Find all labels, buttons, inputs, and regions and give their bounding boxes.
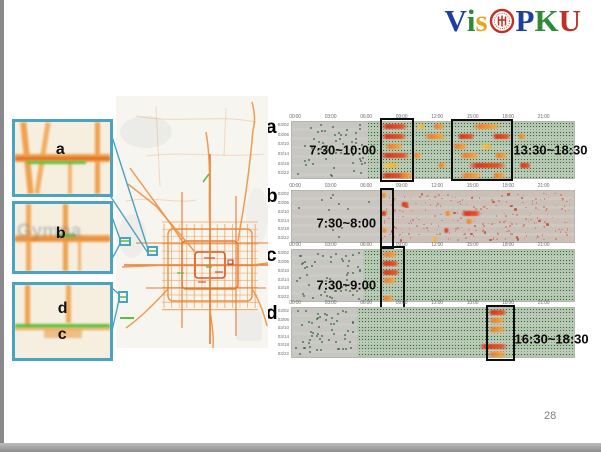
time-range-annotation: 13:30~18:30 xyxy=(513,143,587,158)
logo-letter: U xyxy=(559,4,581,38)
noise-dot xyxy=(512,214,514,216)
noise-dot xyxy=(495,205,497,207)
noise-dot xyxy=(328,209,330,211)
noise-dot xyxy=(475,230,477,232)
time-range-annotation: 7:30~8:00 xyxy=(316,216,376,231)
noise-dot xyxy=(317,131,319,133)
noise-dot xyxy=(408,223,410,225)
y-tick-label: 03/14 xyxy=(274,334,289,339)
inset-road xyxy=(27,161,86,164)
noise-dot xyxy=(565,232,567,234)
noise-dot xyxy=(352,254,354,256)
noise-dot xyxy=(304,347,306,349)
inset-label-b: b xyxy=(56,225,66,243)
congestion-hotspot xyxy=(519,163,531,168)
noise-dot xyxy=(440,214,442,216)
noise-dot xyxy=(332,194,334,196)
noise-dot xyxy=(434,215,436,217)
noise-dot xyxy=(333,323,335,325)
noise-dot xyxy=(460,217,462,219)
noise-dot xyxy=(436,196,438,198)
noise-dot xyxy=(460,203,462,205)
y-tick-label: 03/02 xyxy=(274,250,289,255)
noise-dot xyxy=(352,331,354,333)
noise-dot xyxy=(505,238,507,240)
noise-dot xyxy=(534,222,536,224)
noise-dot xyxy=(328,339,330,341)
noise-dot xyxy=(302,341,304,343)
noise-dot xyxy=(479,197,481,199)
noise-dot xyxy=(313,138,315,140)
heatmap-row-a: a00:0003:0006:0009:0012:0015:0018:0021:0… xyxy=(291,121,575,179)
noise-dot xyxy=(523,224,525,226)
logo-letter: s xyxy=(475,4,487,38)
noise-dot xyxy=(517,194,519,196)
noise-dot xyxy=(342,348,344,350)
noise-dot xyxy=(401,228,403,230)
noise-dot xyxy=(505,226,507,228)
noise-dot xyxy=(346,274,348,276)
x-tick-label: 06:00 xyxy=(360,183,372,189)
noise-dot xyxy=(350,347,352,349)
noise-dot xyxy=(426,196,428,198)
x-tick-label: 03:00 xyxy=(325,242,337,248)
noise-dot xyxy=(492,201,495,204)
noise-dot xyxy=(309,339,311,341)
x-tick-label: 21:00 xyxy=(538,114,550,120)
noise-dot xyxy=(537,217,539,219)
noise-dot xyxy=(331,297,333,299)
vispku-logo: VisPKU xyxy=(444,4,581,41)
noise-dot xyxy=(562,198,564,200)
noise-dot xyxy=(453,212,456,215)
map-inset-b: Gymnab xyxy=(12,201,113,274)
noise-dot xyxy=(532,203,534,205)
y-tick-label: 03/10 xyxy=(274,268,289,273)
noise-dot xyxy=(521,197,524,200)
noise-dot xyxy=(565,210,567,212)
noise-dot xyxy=(416,217,418,219)
noise-dot xyxy=(509,225,511,227)
noise-dot xyxy=(309,346,311,348)
noise-dot xyxy=(362,157,364,159)
noise-dot xyxy=(413,219,415,221)
noise-dot xyxy=(567,222,569,224)
noise-dot xyxy=(311,335,313,337)
y-tick-label: 03/10 xyxy=(274,325,289,330)
noise-dot xyxy=(335,253,337,255)
noise-dot xyxy=(335,341,337,343)
noise-dot xyxy=(342,260,344,262)
noise-dot xyxy=(528,221,530,223)
noise-dot xyxy=(368,201,370,203)
noise-dot xyxy=(564,205,566,207)
noise-dot xyxy=(438,225,440,227)
noise-dot xyxy=(342,310,344,312)
noise-dot xyxy=(408,206,410,208)
noise-dot xyxy=(325,319,327,321)
noise-dot xyxy=(510,205,513,208)
noise-dot xyxy=(538,209,540,211)
noise-dot xyxy=(408,233,410,235)
noise-dot xyxy=(499,221,501,223)
noise-dot xyxy=(304,261,306,263)
noise-dot xyxy=(560,194,562,196)
noise-dot xyxy=(299,353,301,355)
noise-dot xyxy=(352,162,354,164)
heatmap-row-c: c00:0003:0006:0009:0012:0015:0018:0021:0… xyxy=(291,249,575,302)
noise-dot xyxy=(330,197,332,199)
noise-dot xyxy=(496,215,498,217)
noise-dot xyxy=(326,295,328,297)
y-tick-label: 03/18 xyxy=(274,161,289,166)
x-tick-label: 09:00 xyxy=(396,183,408,189)
x-tick-label: 00:00 xyxy=(289,114,301,120)
noise-dot xyxy=(508,230,510,232)
noise-dot xyxy=(525,207,527,209)
noise-dot xyxy=(352,272,354,274)
x-tick-label: 06:00 xyxy=(360,300,372,306)
noise-dot xyxy=(346,129,348,131)
x-tick-label: 21:00 xyxy=(538,183,550,189)
heatmap-plot-d: 16:30~18:30 xyxy=(291,307,575,358)
noise-dot xyxy=(338,203,340,205)
noise-dot xyxy=(314,261,316,263)
noise-dot xyxy=(423,228,425,230)
noise-dot xyxy=(481,213,483,215)
noise-dot xyxy=(507,193,510,196)
noise-dot xyxy=(402,232,404,234)
noise-dot xyxy=(334,134,336,136)
noise-dot xyxy=(331,329,333,331)
highlight-rect xyxy=(380,118,413,182)
noise-dot xyxy=(306,266,308,268)
noise-dot xyxy=(431,223,433,225)
noise-dot xyxy=(530,213,532,215)
noise-dot xyxy=(321,335,323,337)
noise-dot xyxy=(440,205,442,207)
congestion-hotspot xyxy=(445,211,451,216)
noise-dot xyxy=(394,210,396,212)
noise-dot xyxy=(411,211,413,213)
noise-dot xyxy=(474,221,476,223)
noise-dot xyxy=(473,235,475,237)
noise-dot xyxy=(316,335,318,337)
noise-dot xyxy=(305,310,307,312)
window-left-edge xyxy=(0,0,4,452)
noise-dot xyxy=(358,252,360,254)
inset-label-a: a xyxy=(56,141,65,159)
noise-dot xyxy=(355,132,357,134)
noise-dot xyxy=(331,317,333,319)
y-tick-label: 03/02 xyxy=(274,122,289,127)
noise-dot xyxy=(441,220,443,222)
noise-dot xyxy=(506,201,508,203)
x-tick-label: 15:00 xyxy=(467,183,479,189)
noise-dot xyxy=(564,222,566,224)
noise-dot xyxy=(448,238,450,240)
noise-dot xyxy=(306,274,308,276)
noise-dot xyxy=(457,212,459,214)
dot-scatter xyxy=(292,250,574,301)
y-tick-label: 03/02 xyxy=(274,191,289,196)
noise-dot xyxy=(360,160,362,162)
noise-dot xyxy=(305,164,307,166)
x-tick-label: 15:00 xyxy=(467,300,479,306)
noise-dot xyxy=(352,294,354,296)
noise-dot xyxy=(402,211,404,213)
noise-dot xyxy=(322,255,324,257)
noise-dot xyxy=(464,233,466,235)
y-tick-label: 03/14 xyxy=(274,151,289,156)
noise-dot xyxy=(302,262,304,264)
noise-dot xyxy=(425,209,427,211)
noise-dot xyxy=(462,199,464,201)
noise-dot xyxy=(474,225,477,228)
noise-dot xyxy=(486,208,488,210)
logo-letter: K xyxy=(534,4,558,38)
noise-dot xyxy=(415,203,417,205)
noise-dot xyxy=(449,232,451,234)
noise-dot xyxy=(359,270,361,272)
window-bottom-bar xyxy=(0,443,601,452)
noise-dot xyxy=(447,194,449,196)
noise-dot xyxy=(529,215,531,217)
noise-dot xyxy=(319,316,321,318)
noise-dot xyxy=(297,310,299,312)
noise-dot xyxy=(413,210,415,212)
noise-dot xyxy=(491,223,493,225)
traffic-map-area: aGymnabdc xyxy=(8,92,270,358)
noise-dot xyxy=(364,162,366,164)
noise-dot xyxy=(325,158,327,160)
x-tick-label: 18:00 xyxy=(502,183,514,189)
highlight-rect xyxy=(451,119,514,181)
noise-dot xyxy=(465,237,467,239)
noise-dot xyxy=(516,223,518,225)
noise-dot xyxy=(555,238,557,240)
noise-dot xyxy=(555,230,557,232)
noise-dot xyxy=(421,195,423,197)
y-tick-label: 03/22 xyxy=(274,170,289,175)
noise-dot xyxy=(569,205,571,207)
noise-dot xyxy=(428,230,430,232)
x-tick-label: 03:00 xyxy=(325,183,337,189)
noise-dot xyxy=(498,200,500,202)
noise-dot xyxy=(526,235,528,237)
noise-dot xyxy=(546,194,548,196)
noise-dot xyxy=(429,199,431,201)
noise-dot xyxy=(320,349,322,351)
noise-dot xyxy=(419,196,421,198)
y-tick-label: 03/22 xyxy=(274,351,289,356)
noise-dot xyxy=(321,130,323,132)
noise-dot xyxy=(338,348,340,350)
noise-dot xyxy=(548,197,550,199)
noise-dot xyxy=(410,198,412,200)
noise-dot xyxy=(441,198,443,200)
noise-dot xyxy=(450,200,452,202)
noise-dot xyxy=(522,202,524,204)
noise-dot xyxy=(459,201,461,203)
y-tick-label: 03/06 xyxy=(274,200,289,205)
noise-dot xyxy=(427,195,429,197)
noise-dot xyxy=(437,203,439,205)
noise-dot xyxy=(311,322,313,324)
logo-letter: V xyxy=(444,4,466,38)
noise-dot xyxy=(466,204,468,206)
noise-dot xyxy=(543,239,545,241)
noise-dot xyxy=(308,321,310,323)
noise-dot xyxy=(348,260,350,262)
noise-dot xyxy=(399,235,401,237)
noise-dot xyxy=(308,342,310,344)
noise-dot xyxy=(398,216,400,218)
noise-dot xyxy=(423,224,425,226)
noise-dot xyxy=(425,202,427,204)
noise-dot xyxy=(543,193,545,195)
noise-dot xyxy=(304,145,306,147)
heatmap-plot-b: 7:30~8:00 xyxy=(291,190,575,243)
noise-dot xyxy=(330,174,332,176)
noise-dot xyxy=(536,222,538,224)
noise-dot xyxy=(560,231,562,233)
noise-dot xyxy=(357,266,359,268)
noise-dot xyxy=(561,208,563,210)
noise-dot xyxy=(457,202,459,204)
noise-dot xyxy=(504,213,506,215)
noise-dot xyxy=(321,341,323,343)
heatmap-plot-a: 7:30~10:0013:30~18:30 xyxy=(291,121,575,179)
logo-letter: i xyxy=(467,4,476,38)
noise-dot xyxy=(312,163,314,165)
noise-dot xyxy=(566,234,568,236)
noise-dot xyxy=(496,239,498,241)
noise-dot xyxy=(361,163,363,165)
noise-dot xyxy=(347,208,349,210)
noise-dot xyxy=(568,210,570,212)
y-tick-label: 03/14 xyxy=(274,218,289,223)
noise-dot xyxy=(345,311,347,313)
noise-dot xyxy=(320,124,322,126)
heatmap-row-d: d00:0003:0006:0009:0012:0015:0018:0021:0… xyxy=(291,307,575,358)
page-number: 28 xyxy=(544,410,556,422)
noise-dot xyxy=(298,207,300,209)
noise-dot xyxy=(483,225,485,227)
noise-dot xyxy=(436,205,438,207)
noise-dot xyxy=(461,227,463,229)
noise-dot xyxy=(300,255,302,257)
y-tick-label: 03/06 xyxy=(274,132,289,137)
noise-dot xyxy=(330,323,332,325)
noise-dot xyxy=(316,349,318,351)
noise-dot xyxy=(353,170,355,172)
inset-road xyxy=(68,159,72,194)
noise-dot xyxy=(536,238,538,240)
x-tick-label: 12:00 xyxy=(431,300,443,306)
noise-dot xyxy=(484,231,487,234)
noise-dot xyxy=(455,231,457,233)
noise-dot xyxy=(304,160,306,162)
inset-label-d: d xyxy=(58,300,68,318)
slide-canvas: VisPKU aGymnabdc a00:0003:0006:0009:0012… xyxy=(4,0,601,443)
noise-dot xyxy=(455,228,457,230)
noise-dot xyxy=(296,280,298,282)
noise-dot xyxy=(345,255,347,257)
noise-dot xyxy=(332,126,334,128)
noise-dot xyxy=(532,200,534,202)
noise-dot xyxy=(317,253,319,255)
noise-dot xyxy=(482,223,484,225)
congestion-hotspot xyxy=(433,124,445,129)
noise-dot xyxy=(552,217,554,219)
noise-dot xyxy=(457,227,459,229)
noise-dot xyxy=(338,132,340,134)
noise-dot xyxy=(514,208,517,211)
logo-letter: P xyxy=(516,4,535,38)
noise-dot xyxy=(344,338,346,340)
noise-dot xyxy=(345,134,347,136)
noise-dot xyxy=(301,324,303,326)
x-tick-label: 12:00 xyxy=(431,183,443,189)
noise-dot xyxy=(304,267,306,269)
time-range-annotation: 7:30~10:00 xyxy=(309,143,376,158)
congestion-hotspot xyxy=(424,134,448,139)
noise-dot xyxy=(525,232,527,234)
noise-dot xyxy=(308,284,310,286)
noise-dot xyxy=(338,236,340,238)
noise-dot xyxy=(497,233,499,235)
noise-dot xyxy=(561,229,563,231)
y-tick-label: 03/18 xyxy=(274,285,289,290)
noise-dot xyxy=(494,223,496,225)
noise-dot xyxy=(480,208,482,210)
noise-dot xyxy=(457,239,459,241)
x-tick-label: 00:00 xyxy=(289,183,301,189)
noise-dot xyxy=(404,196,406,198)
noise-dot xyxy=(355,138,357,140)
noise-dot xyxy=(317,313,319,315)
noise-dot xyxy=(321,199,323,201)
noise-dot xyxy=(312,297,314,299)
noise-dot xyxy=(330,261,332,263)
noise-dot xyxy=(546,223,549,226)
noise-dot xyxy=(489,239,492,242)
noise-dot xyxy=(337,313,339,315)
noise-dot xyxy=(320,294,322,296)
noise-dot xyxy=(303,295,305,297)
noise-dot xyxy=(475,208,477,210)
noise-dot xyxy=(516,214,518,216)
noise-dot xyxy=(340,134,342,136)
noise-dot xyxy=(525,218,527,220)
noise-dot xyxy=(394,198,396,200)
noise-dot xyxy=(437,229,439,231)
noise-dot xyxy=(339,138,341,140)
time-range-annotation: 16:30~18:30 xyxy=(515,331,589,346)
congestion-hotspot xyxy=(417,124,425,129)
noise-dot xyxy=(359,128,361,130)
noise-dot xyxy=(535,198,537,200)
noise-dot xyxy=(455,197,457,199)
noise-dot xyxy=(311,265,313,267)
noise-dot xyxy=(399,210,401,212)
congestion-hotspot xyxy=(518,134,526,139)
noise-dot xyxy=(436,234,438,236)
noise-dot xyxy=(538,220,541,223)
noise-dot xyxy=(411,222,413,224)
pku-seal-icon xyxy=(489,7,515,41)
